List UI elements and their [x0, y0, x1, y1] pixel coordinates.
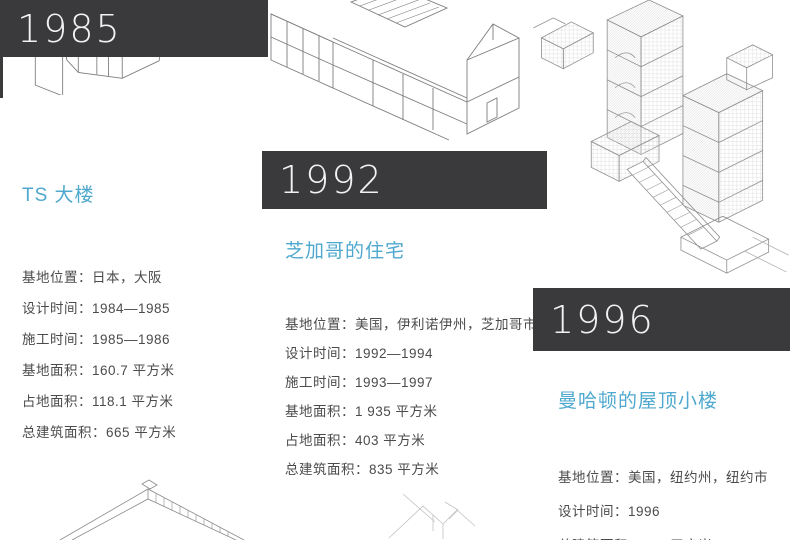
year-label: 1985 — [0, 7, 122, 51]
project-details: 基地位置：美国，纽约州，纽约市 设计时间：1996 总建筑面积：242 平方米 — [558, 466, 768, 540]
project-title: TS 大楼 — [22, 180, 95, 207]
year-banner-1985: 1985 — [0, 0, 268, 57]
detail-line: 设计时间：1992—1994 — [285, 342, 537, 359]
project-details: 基地位置：美国，伊利诺伊州，芝加哥市 设计时间：1992—1994 施工时间：1… — [285, 313, 537, 487]
year-banner-1992: 1992 — [262, 151, 547, 209]
year-label: 1996 — [533, 298, 655, 342]
detail-line: 设计时间：1984—1985 — [22, 297, 176, 314]
project-details: 基地位置：日本，大阪 设计时间：1984—1985 施工时间：1985—1986… — [22, 266, 176, 452]
book-page: 1985 TS 大楼 基地位置：日本，大阪 设计时间：1984—1985 施工时… — [0, 0, 790, 540]
detail-line: 基地面积：1 935 平方米 — [285, 400, 537, 417]
chicago-house-roof-drawing — [385, 492, 480, 540]
project-title: 芝加哥的住宅 — [285, 236, 405, 263]
house-in-chicago-drawing — [253, 0, 538, 150]
detail-line: 占地面积：403 平方米 — [285, 429, 537, 446]
detail-line-clipped: 总建筑面积：242 平方米 — [558, 534, 768, 540]
detail-line: 总建筑面积：665 平方米 — [22, 421, 176, 438]
detail-line: 施工时间：1985—1986 — [22, 328, 176, 345]
ts-building-roof-drawing — [52, 478, 252, 540]
detail-line: 总建筑面积：835 平方米 — [285, 458, 537, 475]
detail-line: 基地面积：160.7 平方米 — [22, 359, 176, 376]
detail-line: 基地位置：日本，大阪 — [22, 266, 176, 283]
project-title: 曼哈顿的屋顶小楼 — [558, 386, 718, 413]
detail-line: 基地位置：美国，纽约州，纽约市 — [558, 466, 768, 483]
manhattan-penthouse-drawing — [530, 0, 790, 287]
detail-line: 施工时间：1993—1997 — [285, 371, 537, 388]
year-banner-1996: 1996 — [533, 288, 790, 351]
detail-line: 占地面积：118.1 平方米 — [22, 390, 176, 407]
detail-line: 设计时间：1996 — [558, 500, 768, 517]
detail-line: 基地位置：美国，伊利诺伊州，芝加哥市 — [285, 313, 537, 330]
year-label: 1992 — [262, 158, 384, 202]
